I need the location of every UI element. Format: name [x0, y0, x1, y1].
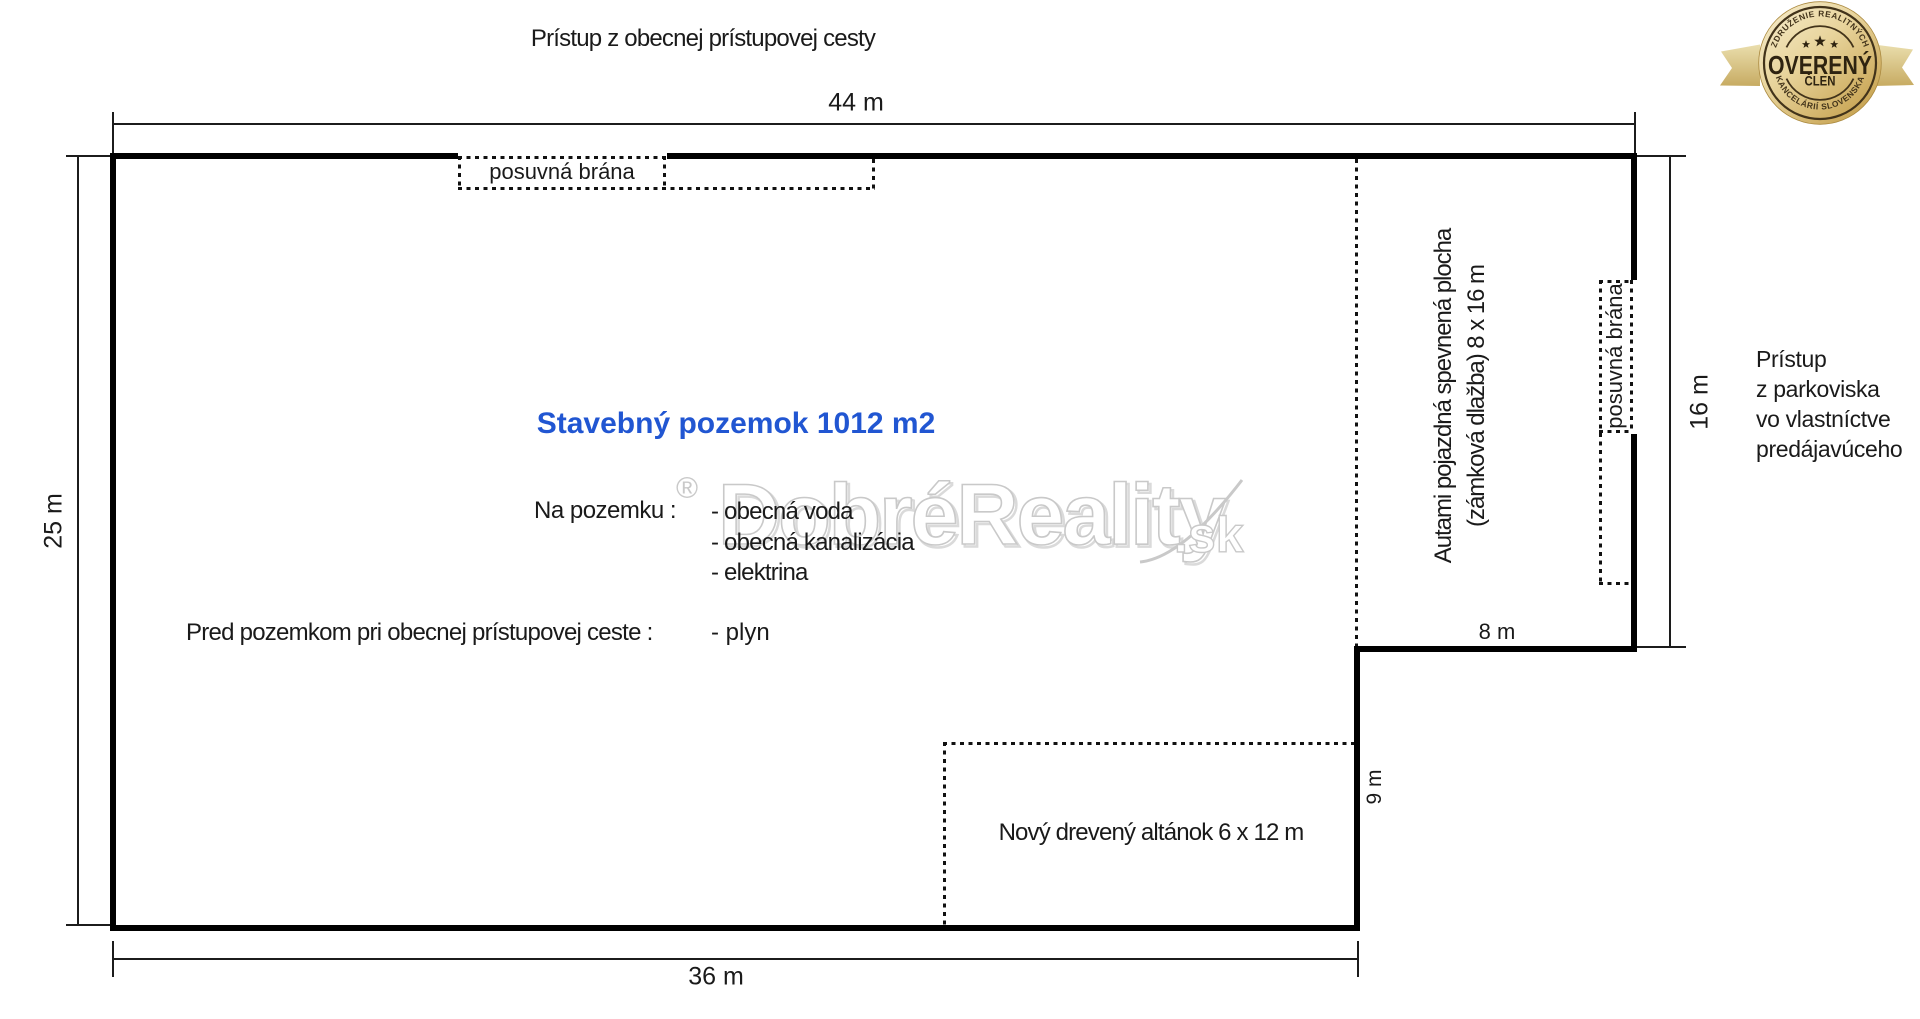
svg-text:.sk: .sk: [1174, 507, 1244, 563]
svg-text:ČLEN: ČLEN: [1805, 74, 1836, 89]
